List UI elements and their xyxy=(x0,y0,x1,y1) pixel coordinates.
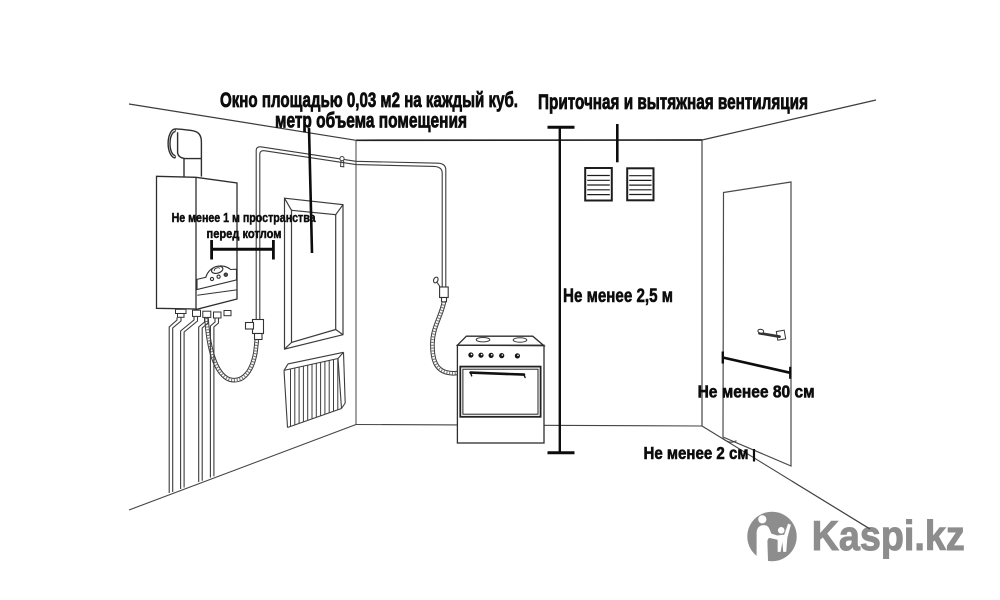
svg-text:Не менее 80 см: Не менее 80 см xyxy=(698,381,815,401)
svg-text:Приточная и вытяжная вентиляци: Приточная и вытяжная вентиляция xyxy=(538,90,808,114)
svg-text:метр объема помещения: метр объема помещения xyxy=(275,109,467,133)
svg-text:Не менее 1 м пространства: Не менее 1 м пространства xyxy=(172,210,317,225)
svg-text:Не менее 2,5 м: Не менее 2,5 м xyxy=(563,285,673,307)
svg-text:Kaspi.kz: Kaspi.kz xyxy=(812,512,965,559)
svg-text:Не менее 2 см: Не менее 2 см xyxy=(644,443,749,463)
svg-text:перед котлом: перед котлом xyxy=(207,226,282,241)
